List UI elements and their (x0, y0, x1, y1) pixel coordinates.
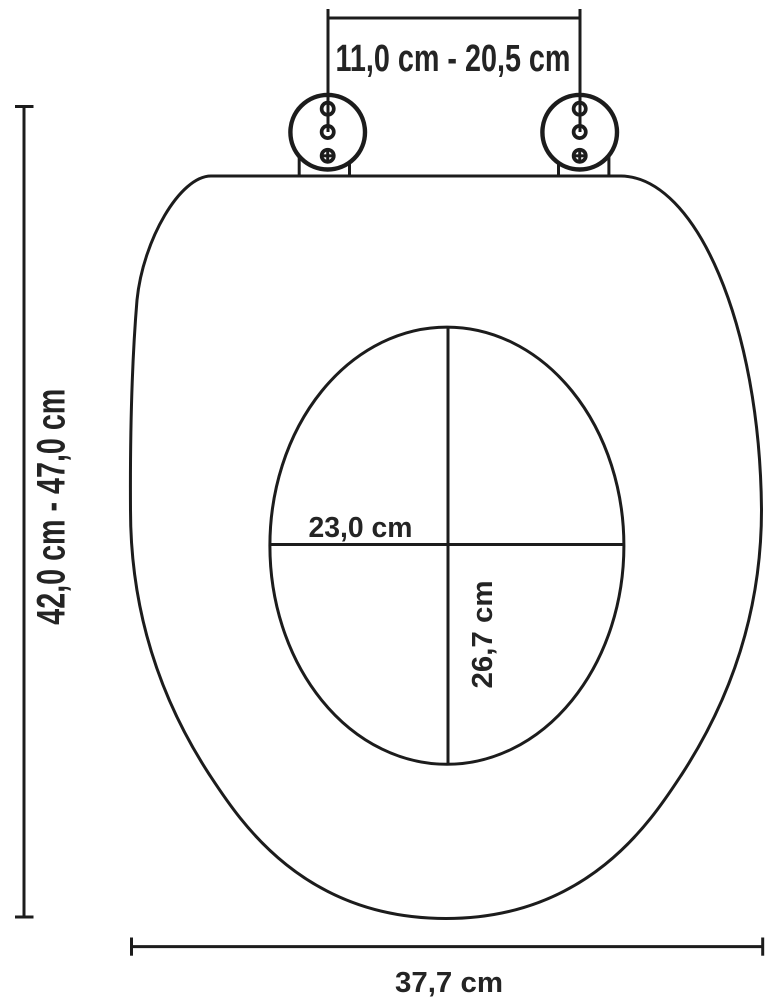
svg-text:37,7 cm: 37,7 cm (395, 967, 503, 999)
svg-text:42,0 cm - 47,0 cm: 42,0 cm - 47,0 cm (30, 389, 74, 625)
svg-text:11,0 cm - 20,5 cm: 11,0 cm - 20,5 cm (336, 38, 571, 80)
svg-text:23,0 cm: 23,0 cm (309, 512, 413, 544)
svg-text:26,7 cm: 26,7 cm (467, 581, 499, 689)
